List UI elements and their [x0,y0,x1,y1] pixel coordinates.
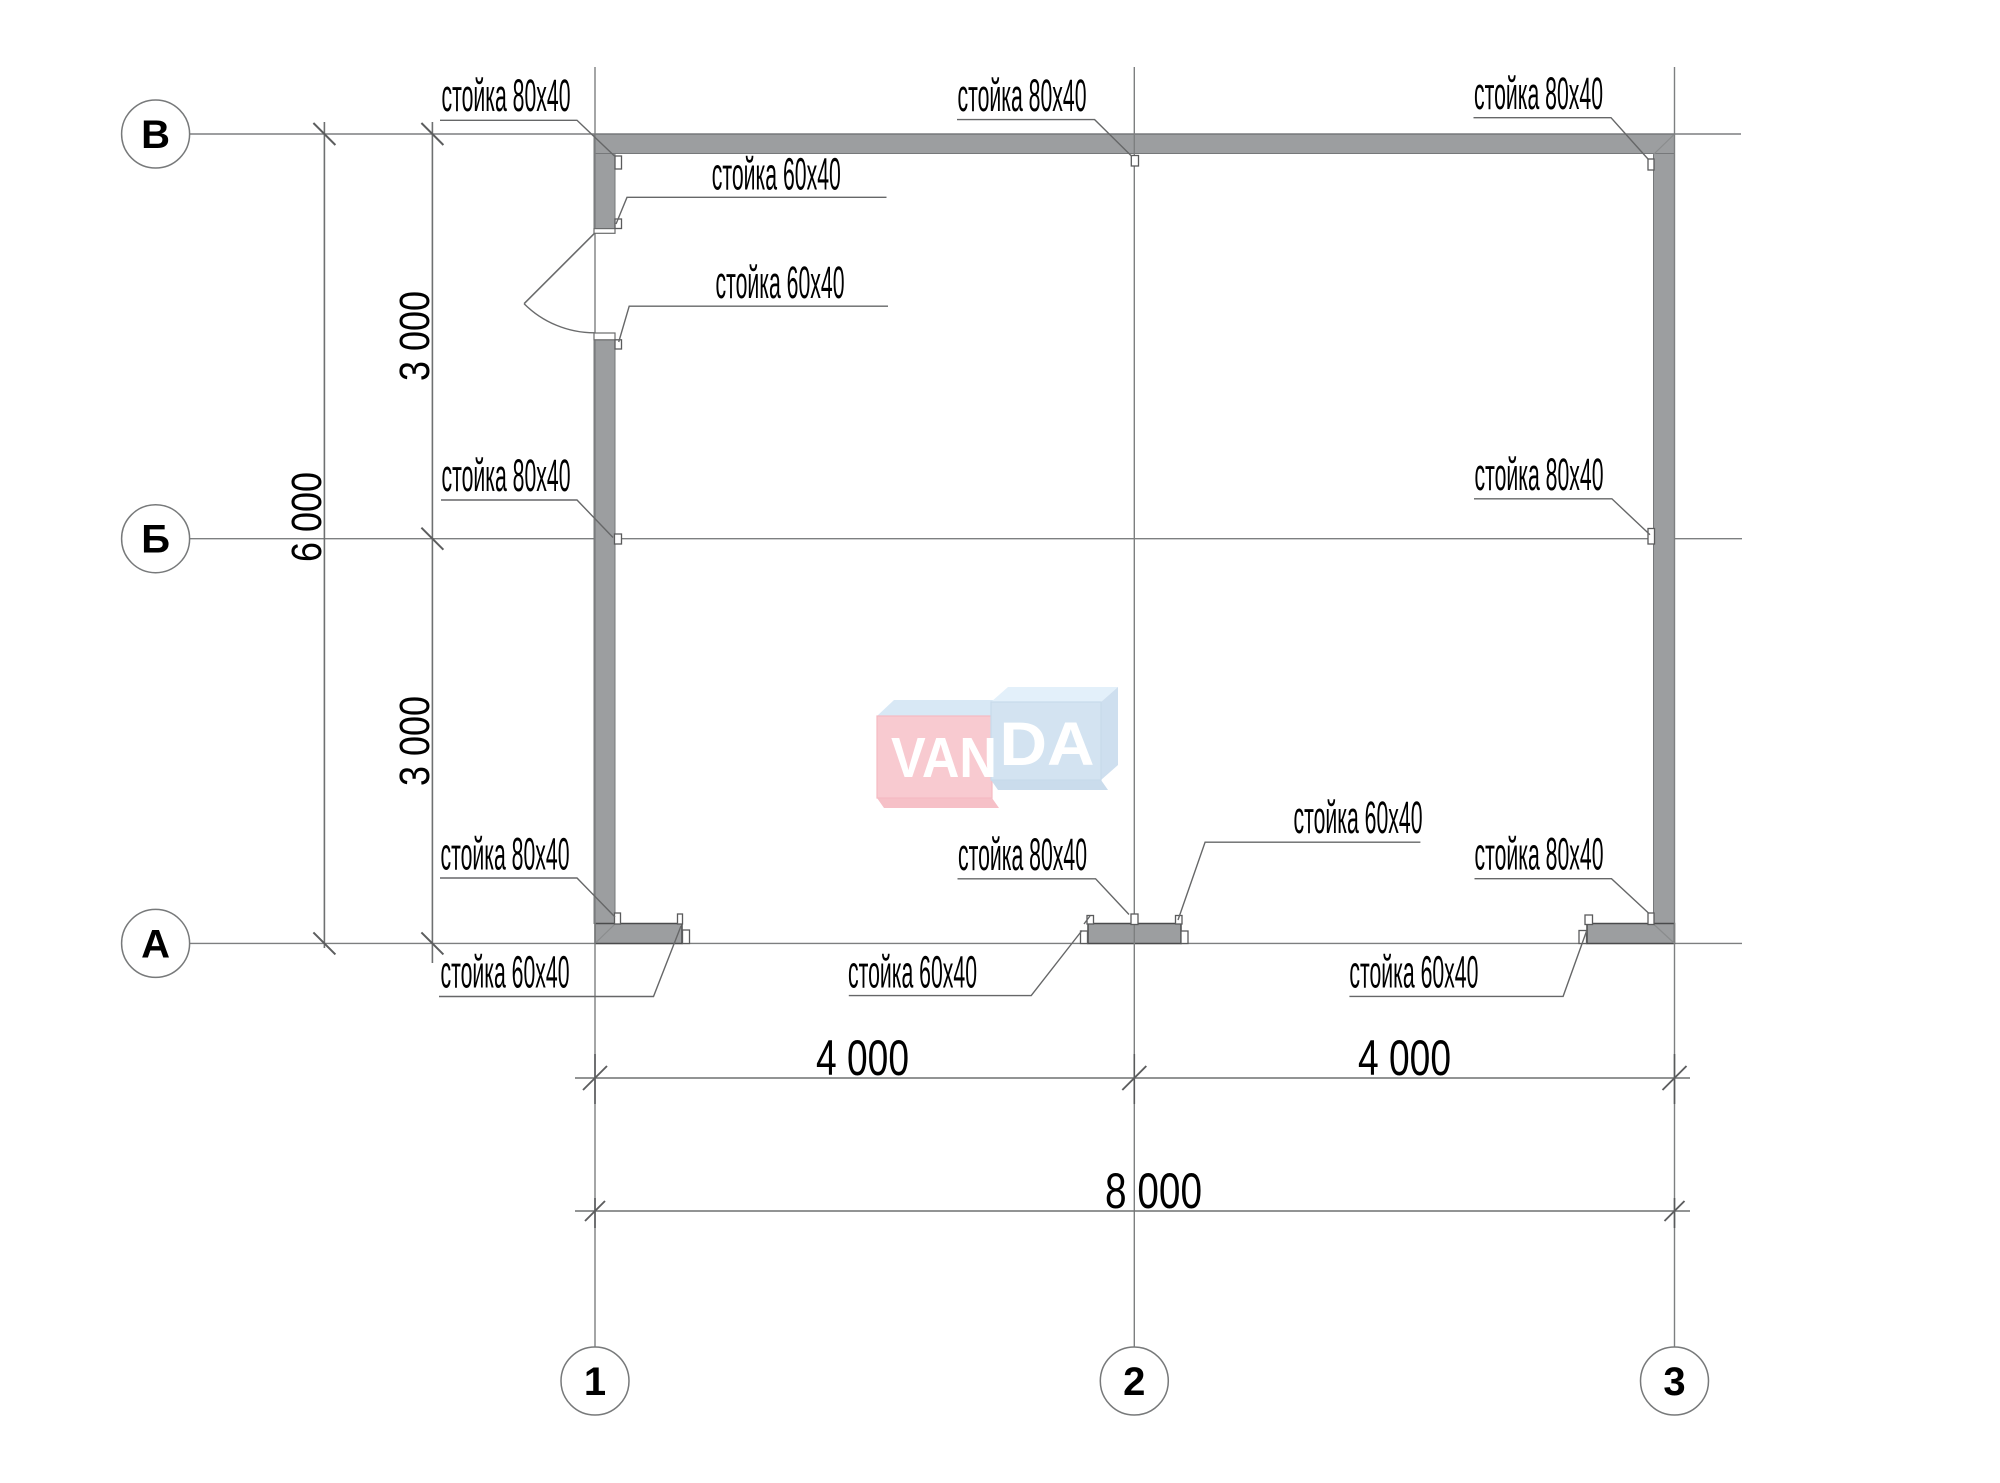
svg-text:стойка 80х40: стойка 80х40 [1475,449,1604,500]
svg-text:Б: Б [141,518,170,562]
svg-text:стойка 60х40: стойка 60х40 [848,947,977,998]
svg-text:стойка 60х40: стойка 60х40 [1349,947,1478,998]
svg-text:стойка 80х40: стойка 80х40 [442,450,571,501]
svg-text:стойка 60х40: стойка 60х40 [716,257,845,308]
svg-text:стойка 60х40: стойка 60х40 [712,149,841,200]
svg-text:стойка 80х40: стойка 80х40 [442,70,571,121]
svg-text:3: 3 [1663,1360,1685,1404]
svg-text:стойка 80х40: стойка 80х40 [441,829,570,880]
svg-text:В: В [141,113,170,157]
svg-text:6 000: 6 000 [283,472,331,562]
svg-text:стойка 60х40: стойка 60х40 [1294,792,1423,843]
svg-text:DA: DA [1000,710,1095,778]
svg-text:1: 1 [584,1360,606,1404]
svg-text:стойка 80х40: стойка 80х40 [958,829,1087,880]
svg-text:4 000: 4 000 [816,1030,909,1086]
svg-text:8 000: 8 000 [1105,1163,1202,1219]
svg-text:2: 2 [1123,1360,1145,1404]
svg-text:VAN: VAN [891,726,997,790]
svg-text:4 000: 4 000 [1358,1030,1451,1086]
svg-text:А: А [141,922,170,966]
svg-text:стойка 80х40: стойка 80х40 [958,70,1087,121]
svg-text:3 000: 3 000 [391,696,439,786]
svg-text:3 000: 3 000 [391,291,439,381]
svg-text:стойка 80х40: стойка 80х40 [1474,68,1603,119]
svg-text:стойка 80х40: стойка 80х40 [1475,829,1604,880]
svg-text:стойка 60х40: стойка 60х40 [441,947,570,998]
